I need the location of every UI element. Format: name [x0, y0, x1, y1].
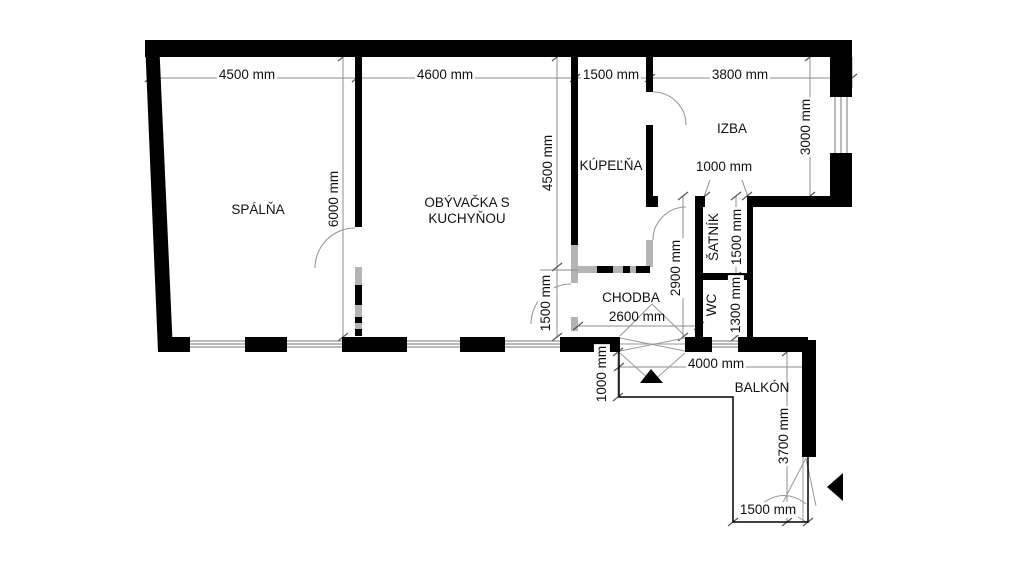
room-label-izba: IZBA	[717, 121, 747, 137]
room-label-wc: WC	[704, 294, 720, 317]
dimension-label-balkon-step: 1000 mm	[594, 344, 610, 404]
dimension-label-spalna-depth: 6000 mm	[326, 169, 342, 229]
dimension-label-chodba-width: 2600 mm	[609, 309, 665, 325]
room-label-spalna: SPÁLŇA	[231, 202, 284, 218]
dimension-label-obyvacka-opening: 1500 mm	[538, 273, 554, 333]
dimension-label-izba-width: 3800 mm	[710, 67, 770, 83]
room-label-obyvacka: OBÝVAČKA S KUCHYŇOU	[411, 195, 523, 227]
dimension-label-spalna-width: 4500 mm	[217, 67, 277, 83]
dimension-label-obyvacka-width: 4600 mm	[415, 67, 475, 83]
dimension-label-satnik-depth: 1500 mm	[729, 207, 745, 267]
dimension-label-izba-window: 3000 mm	[798, 97, 814, 157]
dimension-label-balkon-width: 4000 mm	[686, 356, 746, 372]
room-label-satnik: ŠATNÍK	[706, 213, 722, 261]
dimension-label-balkon-door: 1500 mm	[738, 502, 798, 518]
floor-plan: 4500 mm 4600 mm 1500 mm 3800 mm SPÁLŇA O…	[0, 0, 1011, 570]
dimension-label-obyvacka-depth: 4500 mm	[540, 133, 556, 193]
dimension-label-wc-depth: 1300 mm	[728, 275, 744, 335]
dimension-label-kupelna-width: 1500 mm	[581, 67, 641, 83]
floor-plan-drawing	[0, 0, 1011, 570]
room-label-balkon: BALKÓN	[735, 380, 790, 396]
room-label-chodba: CHODBA	[602, 290, 660, 306]
dimension-label-balkon-depth: 3700 mm	[776, 406, 792, 466]
dimension-label-izba-door: 1000 mm	[696, 159, 752, 175]
room-label-kupelna: KÚPEĽŇA	[579, 158, 642, 174]
dimension-label-chodba-depth: 2900 mm	[668, 238, 684, 298]
left-arrow-icon	[827, 473, 843, 501]
